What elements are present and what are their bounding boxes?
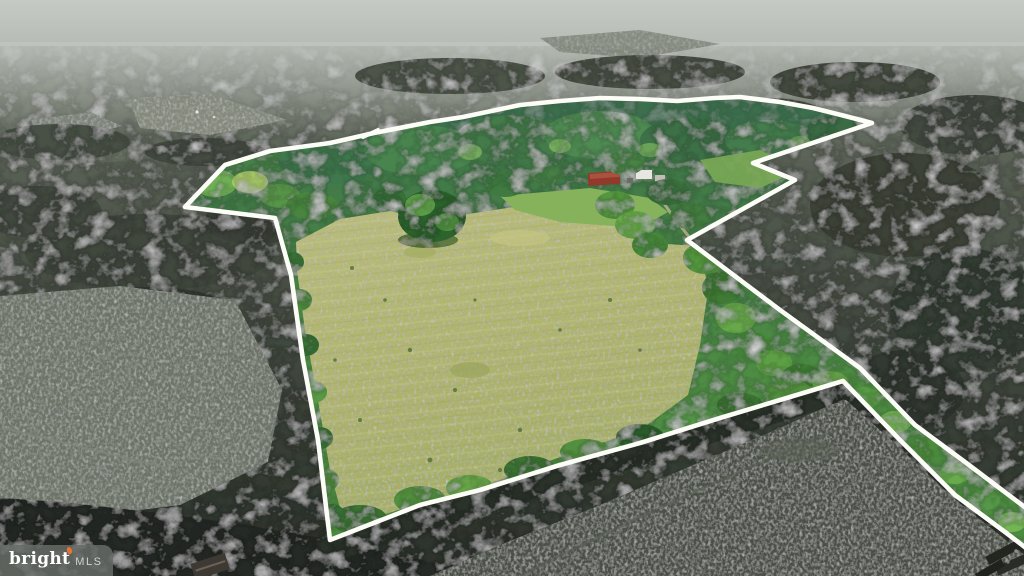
- distant-house-dot: [213, 116, 216, 119]
- brightmls-watermark: bright MLS: [0, 545, 113, 576]
- aerial-listing-photo: bright MLS: [0, 0, 1024, 576]
- brightmls-wordmark: bright: [9, 551, 70, 568]
- distant-house-dot: [195, 110, 198, 113]
- photo-canvas: [0, 0, 1024, 576]
- mls-suffix: MLS: [75, 557, 102, 568]
- brand-text: bright: [9, 549, 70, 569]
- small-shed: [627, 178, 633, 183]
